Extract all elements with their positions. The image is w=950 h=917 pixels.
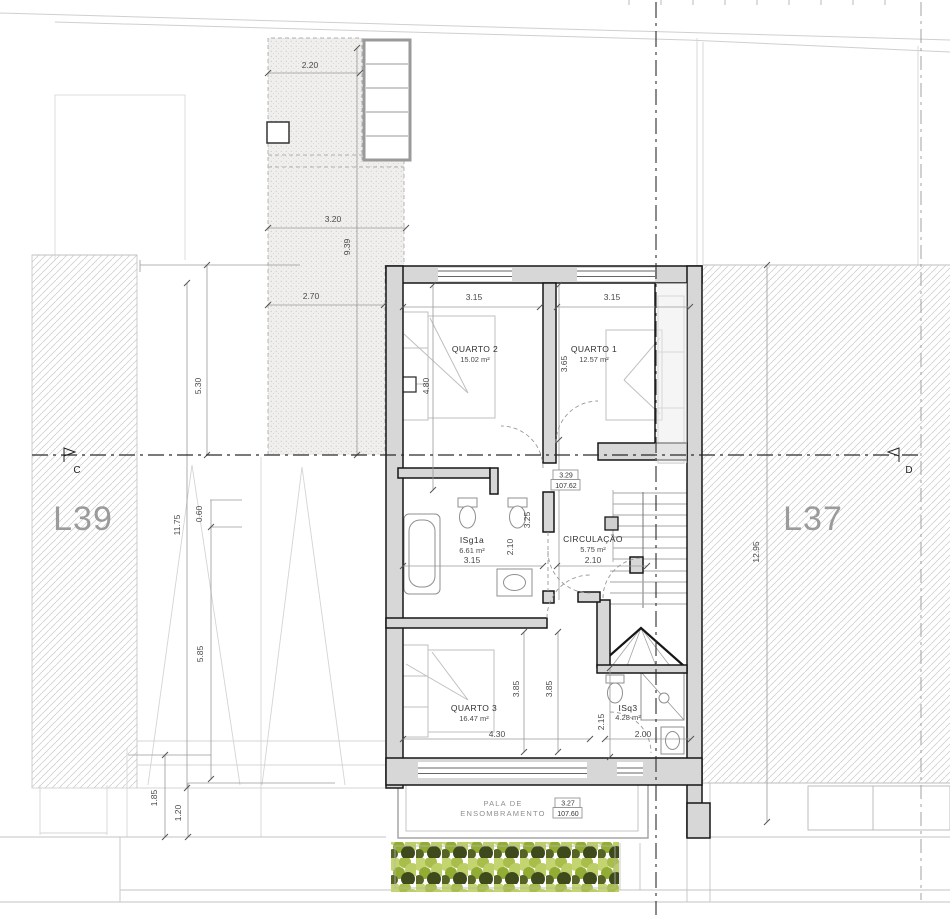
- dim-quarto2-depth: 4.80: [421, 377, 431, 394]
- dim-terrace-width-top: 2.20: [302, 60, 319, 70]
- dim-quarto1-depth: 3.65: [559, 355, 569, 372]
- dim-quarto3-width: 4.30: [489, 729, 506, 739]
- bathtub: [404, 514, 440, 594]
- dim-quarto3-depth-a: 3.85: [511, 680, 521, 697]
- level-absolute-1: 107.62: [555, 483, 577, 490]
- room-area-quarto2: 15.02 m²: [460, 355, 490, 364]
- room-area-circulacao: 5.75 m²: [580, 545, 606, 554]
- dim-terrace-length: 9.39: [342, 238, 352, 255]
- level-absolute-2: 107.60: [557, 811, 579, 818]
- shower: [641, 672, 684, 720]
- dim-site-left-4: 5.85: [195, 645, 205, 662]
- canopy-label-line2: ENSOMBRAMENTO: [460, 809, 545, 818]
- dim-site-left-3: 0.60: [194, 505, 204, 522]
- room-label-quarto1: QUARTO 1: [571, 344, 617, 354]
- floor-plan-page: L39 L37 C D QUARTO 2 15.02 m² QUARTO 1 1…: [0, 0, 950, 917]
- section-marker-d-label: D: [905, 465, 912, 476]
- dim-site-left-1: 5.30: [193, 377, 203, 394]
- room-area-isg1a: 6.61 m²: [459, 546, 485, 555]
- room-label-quarto2: QUARTO 2: [452, 344, 498, 354]
- room-label-quarto3: QUARTO 3: [451, 703, 497, 713]
- dim-isq3-width: 2.00: [635, 729, 652, 739]
- hedge: [391, 842, 619, 892]
- dim-quarto1-width: 3.15: [604, 292, 621, 302]
- toilet-isq3: [606, 675, 624, 703]
- level-relative-2: 3.27: [561, 801, 575, 808]
- section-marker-c-label: C: [73, 465, 80, 476]
- dim-terrace-width-bottom: 2.70: [303, 291, 320, 301]
- chimney: [267, 122, 289, 143]
- dim-terrace-width-mid: 3.20: [325, 214, 342, 224]
- dim-circulacao-width: 2.10: [585, 555, 602, 565]
- dim-isq3-depth: 2.15: [596, 713, 606, 730]
- room-area-isq3: 4.28 m²: [615, 713, 641, 722]
- canopy-label-line1: PALA DE: [483, 799, 522, 808]
- lot-label-right: L37: [783, 500, 843, 538]
- site-context-lines: [0, 0, 950, 265]
- building: [386, 266, 710, 838]
- toilet: [458, 498, 477, 528]
- neighbour-patio: [808, 786, 950, 830]
- room-area-quarto3: 16.47 m²: [459, 714, 489, 723]
- lot-label-left: L39: [53, 500, 113, 538]
- dim-isg1a-depth: 2.10: [505, 538, 515, 555]
- level-relative-1: 3.29: [559, 473, 573, 480]
- room-label-isq3: ISq3: [618, 703, 637, 713]
- dim-quarto3-depth-b: 3.85: [544, 680, 554, 697]
- room-label-circulacao: CIRCULAÇÃO: [563, 534, 623, 544]
- dim-quarto2-width: 3.15: [466, 292, 483, 302]
- dim-site-left-5: 1.85: [149, 789, 159, 806]
- wall-niche: [402, 377, 416, 392]
- dim-isg1a-width: 3.15: [464, 555, 481, 565]
- floor-plan-drawing: L39 L37 C D QUARTO 2 15.02 m² QUARTO 1 1…: [0, 0, 950, 917]
- washbasin-isq3: [661, 727, 684, 754]
- room-area-quarto1: 12.57 m²: [579, 355, 609, 364]
- dim-site-right: 12.95: [751, 541, 761, 563]
- room-label-isg1a: ISg1a: [460, 535, 484, 545]
- closet-zone: [655, 283, 687, 463]
- washbasin: [497, 569, 532, 596]
- skylight: [364, 40, 410, 160]
- newel-post: [605, 517, 618, 530]
- dim-hall-depth: 3.25: [522, 511, 532, 528]
- dim-site-left-2: 11.75: [172, 514, 182, 535]
- dim-site-left-6: 1.20: [173, 804, 183, 821]
